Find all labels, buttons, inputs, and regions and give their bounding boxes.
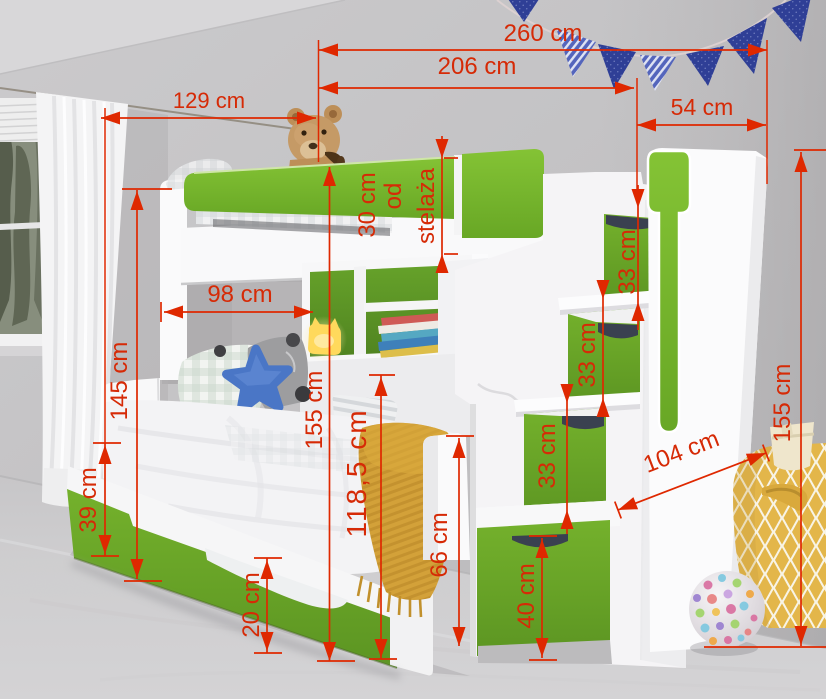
svg-text:20 cm: 20 cm bbox=[238, 572, 265, 637]
svg-text:33 cm: 33 cm bbox=[534, 423, 561, 488]
svg-text:98 cm: 98 cm bbox=[207, 281, 272, 308]
svg-text:stelaża: stelaża bbox=[413, 167, 440, 244]
svg-text:30 cm: 30 cm bbox=[354, 172, 381, 237]
svg-text:155 cm: 155 cm bbox=[301, 371, 328, 450]
svg-text:54 cm: 54 cm bbox=[671, 94, 734, 120]
svg-text:129 cm: 129 cm bbox=[173, 88, 245, 113]
svg-text:33 cm: 33 cm bbox=[574, 322, 601, 387]
svg-text:118,5 cm: 118,5 cm bbox=[341, 408, 372, 537]
svg-text:155 cm: 155 cm bbox=[769, 364, 796, 443]
svg-text:33 cm: 33 cm bbox=[614, 229, 641, 294]
svg-text:260 cm: 260 cm bbox=[504, 20, 583, 47]
svg-text:40 cm: 40 cm bbox=[513, 563, 540, 628]
svg-text:66 cm: 66 cm bbox=[426, 512, 453, 577]
svg-text:145 cm: 145 cm bbox=[106, 342, 133, 421]
svg-text:206 cm: 206 cm bbox=[438, 53, 517, 80]
svg-text:od: od bbox=[380, 183, 407, 210]
svg-text:39 cm: 39 cm bbox=[75, 467, 102, 532]
